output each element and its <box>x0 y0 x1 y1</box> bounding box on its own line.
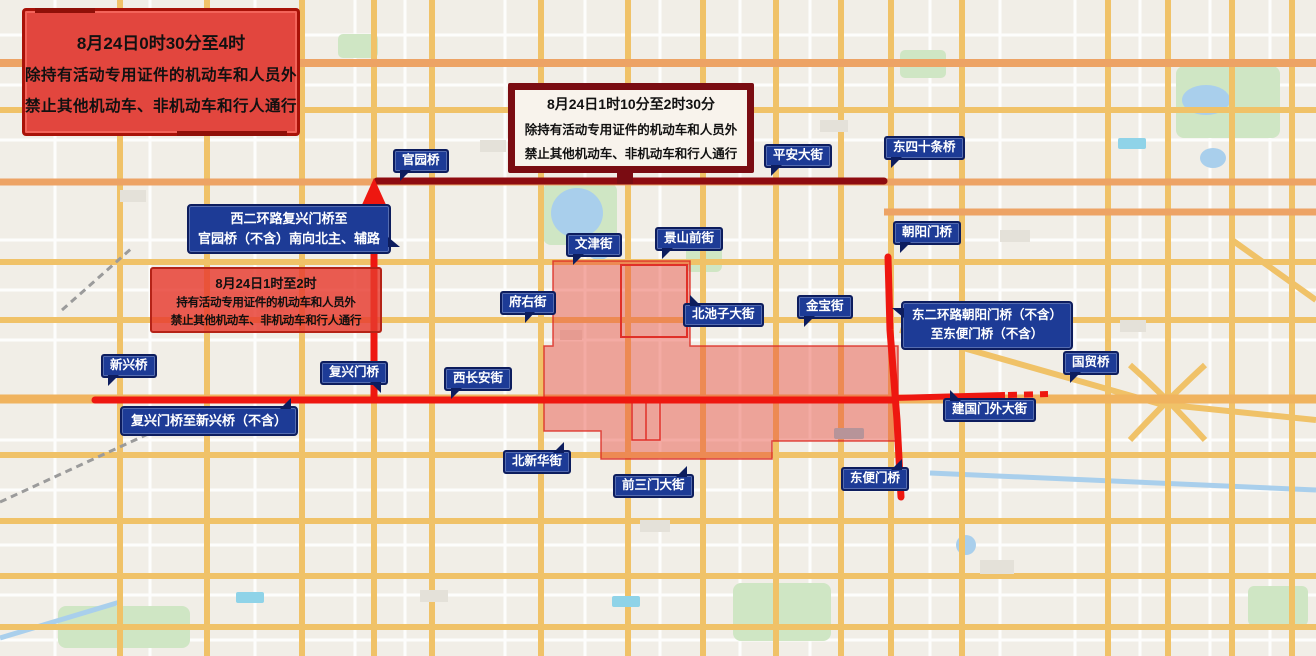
route-note-line: 官园桥（不含）南向北主、辅路 <box>198 229 380 249</box>
banner-ornament <box>35 8 95 13</box>
route-note-west-second-ring: 西二环路复兴门桥至 官园桥（不含）南向北主、辅路 <box>187 204 391 254</box>
notice-prohibition: 禁止其他机动车、非机动车和行人通行 <box>519 143 743 162</box>
notice-banner-0100-0200: 8月24日1时至2时 持有活动专用证件的机动车和人员外 禁止其他机动车、非机动车… <box>150 267 382 333</box>
label-guanyuan-bridge: 官园桥 <box>393 149 449 173</box>
label-dongsishitiao-bridge: 东四十条桥 <box>884 136 965 160</box>
route-note-line: 复兴门桥至新兴桥（不含） <box>131 411 287 431</box>
label-jingshan-front-street: 景山前街 <box>655 227 723 251</box>
notice-time-range: 8月24日1时至2时 <box>152 273 380 292</box>
restricted-zone-polygon <box>544 261 898 459</box>
label-pingan-avenue: 平安大街 <box>764 144 832 168</box>
notice-exception: 持有活动专用证件的机动车和人员外 <box>152 294 380 310</box>
label-fuxingmen-bridge: 复兴门桥 <box>320 361 388 385</box>
label-west-changan-street: 西长安街 <box>444 367 512 391</box>
label-beixinhua-street: 北新华街 <box>503 450 571 474</box>
route-note-line: 西二环路复兴门桥至 <box>198 209 380 229</box>
label-dongbianmen-bridge: 东便门桥 <box>841 467 909 491</box>
notice-banner-0030-0400: 8月24日0时30分至4时 除持有活动专用证件的机动车和人员外 禁止其他机动车、… <box>22 8 300 136</box>
label-fuyou-street: 府右街 <box>500 291 556 315</box>
notice-exception: 除持有活动专用证件的机动车和人员外 <box>519 119 743 138</box>
route-note-fuxingmen-xinxing: 复兴门桥至新兴桥（不含） <box>120 406 298 436</box>
notice-banner-0110-0230: 8月24日1时10分至2时30分 除持有活动专用证件的机动车和人员外 禁止其他机… <box>508 83 754 173</box>
label-chaoyangmen-bridge: 朝阳门桥 <box>893 221 961 245</box>
route-note-line: 至东便门桥（不含） <box>912 325 1062 344</box>
route-note-east-second-ring: 东二环路朝阳门桥（不含） 至东便门桥（不含） <box>901 301 1073 350</box>
label-qiansanmen-avenue: 前三门大街 <box>613 474 694 498</box>
route-note-line: 东二环路朝阳门桥（不含） <box>912 306 1062 325</box>
notice-prohibition: 禁止其他机动车、非机动车和行人通行 <box>152 312 380 328</box>
label-jianguomenwai-avenue: 建国门外大街 <box>943 398 1036 422</box>
label-beichizi-street: 北池子大街 <box>683 303 764 327</box>
traffic-control-map: 8月24日0时30分至4时 除持有活动专用证件的机动车和人员外 禁止其他机动车、… <box>0 0 1316 656</box>
label-wenjin-street: 文津街 <box>566 233 622 257</box>
banner-ornament <box>177 131 287 136</box>
notice-time-range: 8月24日0时30分至4时 <box>25 29 297 54</box>
label-guomao-bridge: 国贸桥 <box>1063 351 1119 375</box>
notice-time-range: 8月24日1时10分至2时30分 <box>519 94 743 114</box>
notice-exception: 除持有活动专用证件的机动车和人员外 <box>25 63 297 85</box>
label-xinxing-bridge: 新兴桥 <box>101 354 157 378</box>
notice-prohibition: 禁止其他机动车、非机动车和行人通行 <box>25 94 297 116</box>
label-jinbao-street: 金宝街 <box>797 295 853 319</box>
